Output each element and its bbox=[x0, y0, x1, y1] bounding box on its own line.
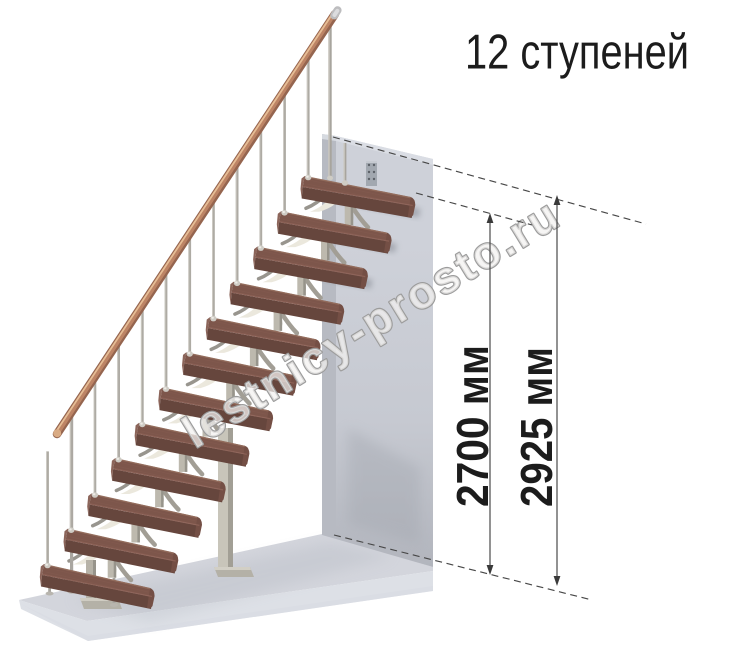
svg-text:2700 мм: 2700 мм bbox=[447, 345, 498, 507]
svg-text:12 ступеней: 12 ступеней bbox=[465, 26, 689, 80]
svg-text:2925 мм: 2925 мм bbox=[511, 347, 562, 507]
